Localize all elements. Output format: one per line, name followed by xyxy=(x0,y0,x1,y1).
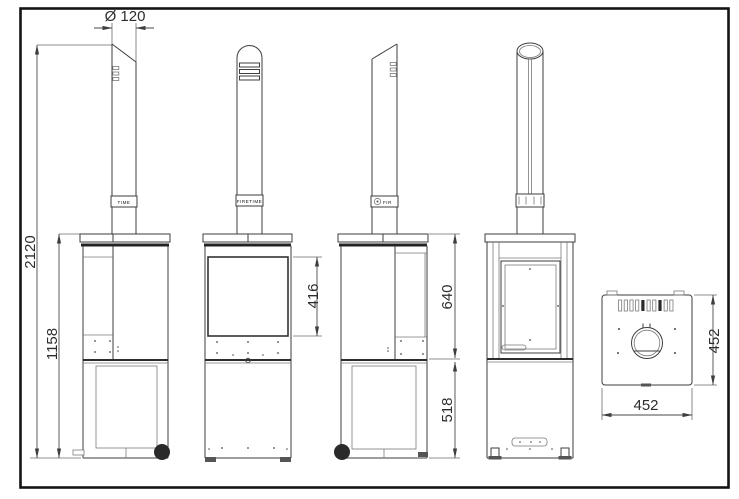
flue-clamp xyxy=(516,194,544,207)
dim-top-depth: 452 xyxy=(706,328,723,353)
dim-flue-diameter: Ø 120 xyxy=(105,8,146,25)
dim-body-height: 1158 xyxy=(44,328,61,360)
brand-band: FIRETIME xyxy=(236,195,263,206)
brand-label: TIME xyxy=(118,200,131,205)
dim-glass-height: 416 xyxy=(305,283,322,308)
wheel xyxy=(334,444,350,460)
wheel xyxy=(154,444,170,460)
drawing-border xyxy=(21,9,729,488)
foot xyxy=(73,450,84,455)
brand-band: TIME xyxy=(111,196,137,207)
dim-base-height: 518 xyxy=(439,397,456,422)
rear-tab xyxy=(641,384,651,387)
foot xyxy=(280,457,291,462)
brand-label: FIR xyxy=(383,200,392,205)
foot xyxy=(205,457,216,462)
drawing-page: Ø 120 2120 1158 TIME xyxy=(0,0,739,499)
dim-stove-height: 640 xyxy=(439,284,456,309)
brand-label: FIRETIME xyxy=(237,199,262,204)
brand-band: FIR xyxy=(371,196,398,207)
foot xyxy=(418,452,428,457)
dim-top-width: 452 xyxy=(633,397,658,414)
technical-drawing: Ø 120 2120 1158 TIME xyxy=(0,0,739,499)
dim-total-height: 2120 xyxy=(22,235,39,268)
